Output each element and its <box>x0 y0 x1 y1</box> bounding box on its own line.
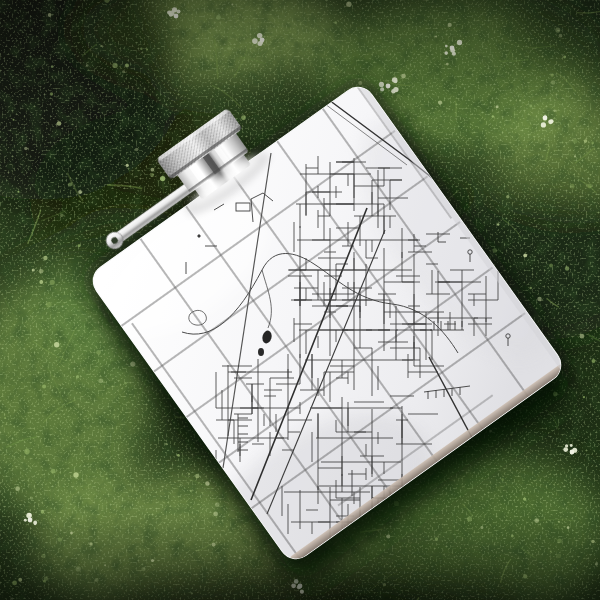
top-vignette <box>0 0 600 130</box>
photo-scene <box>0 0 600 600</box>
photo-svg <box>0 0 600 600</box>
